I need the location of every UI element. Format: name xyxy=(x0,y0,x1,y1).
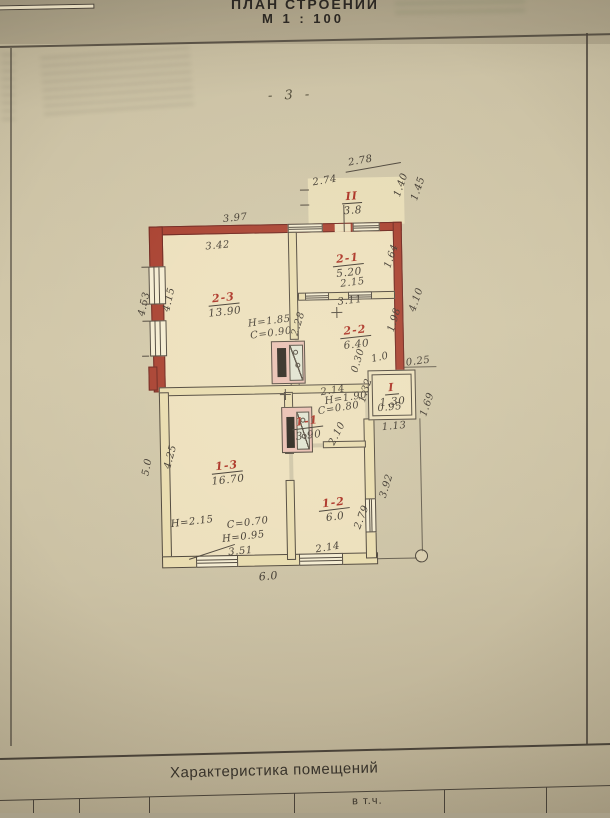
cross-tick xyxy=(336,307,337,318)
dim-label: 4.10 xyxy=(407,286,425,313)
table-divider xyxy=(149,797,150,813)
wall-left-brick-4 xyxy=(148,366,157,390)
dim-label: 6.0 xyxy=(258,570,278,584)
survey-marker-circle xyxy=(415,549,428,562)
dim-label: 1.69 xyxy=(418,391,436,418)
dim-label: 1.40 xyxy=(392,172,410,199)
room-id: I xyxy=(384,380,399,395)
wall-left-brick-1 xyxy=(149,226,164,270)
tick-mark xyxy=(300,204,309,205)
table-divider xyxy=(294,793,295,813)
tick-mark xyxy=(300,190,309,191)
dim-label: 3.42 xyxy=(205,239,231,252)
window-partition-1 xyxy=(305,292,329,300)
stove-flue xyxy=(277,348,287,377)
room-id: II xyxy=(341,189,362,205)
dim-label: 5.0 xyxy=(140,457,154,476)
table-divider xyxy=(79,799,80,813)
room-label-1-2: 1-2 6.0 xyxy=(317,491,351,526)
scanned-document-page: { "header": { "title": "ПЛАН СТРОЕНИЙ", … xyxy=(0,0,610,813)
table-divider xyxy=(546,787,547,813)
cross-tick xyxy=(285,389,286,400)
dim-label: 1.13 xyxy=(381,420,407,433)
dim-label: 3.51 xyxy=(228,545,254,558)
table-divider xyxy=(444,790,445,813)
survey-line-bottom xyxy=(377,557,417,559)
room-label-porch-II: II 3.8 xyxy=(341,186,363,218)
survey-line-right xyxy=(419,418,423,551)
room-label-2-3: 2-3 13.90 xyxy=(206,286,242,320)
tick-mark xyxy=(142,356,149,357)
dim-label: 3.97 xyxy=(222,212,248,226)
wall-porch2-top xyxy=(0,4,94,11)
table-divider xyxy=(33,800,34,813)
dim-label: 0.95 xyxy=(377,401,403,414)
window-left-2 xyxy=(149,320,167,356)
room-area: 3.8 xyxy=(342,204,363,219)
room-label-1-3: 1-3 16.70 xyxy=(209,454,245,488)
stove-icon xyxy=(271,341,306,385)
tick-mark xyxy=(142,321,149,322)
dim-label: 1.45 xyxy=(409,175,427,202)
wall-1-3-lower xyxy=(286,480,297,560)
window-bottom-2 xyxy=(299,553,343,566)
floor-plan: II 3.8 2-1 5.20 2-3 13.90 2-2 6.40 I 1.3… xyxy=(0,0,610,818)
wall-right-lower xyxy=(363,418,377,558)
stove-vent-dot xyxy=(293,350,298,355)
stove-vent-dot xyxy=(295,363,300,368)
dim-label: 2.78 xyxy=(347,153,373,168)
tick-mark xyxy=(141,267,148,268)
table-column-header: в т.ч. xyxy=(352,795,383,808)
dim-label: 3.92 xyxy=(378,473,396,500)
room-id: 1-2 xyxy=(317,494,349,512)
window-top-2 xyxy=(353,222,380,232)
